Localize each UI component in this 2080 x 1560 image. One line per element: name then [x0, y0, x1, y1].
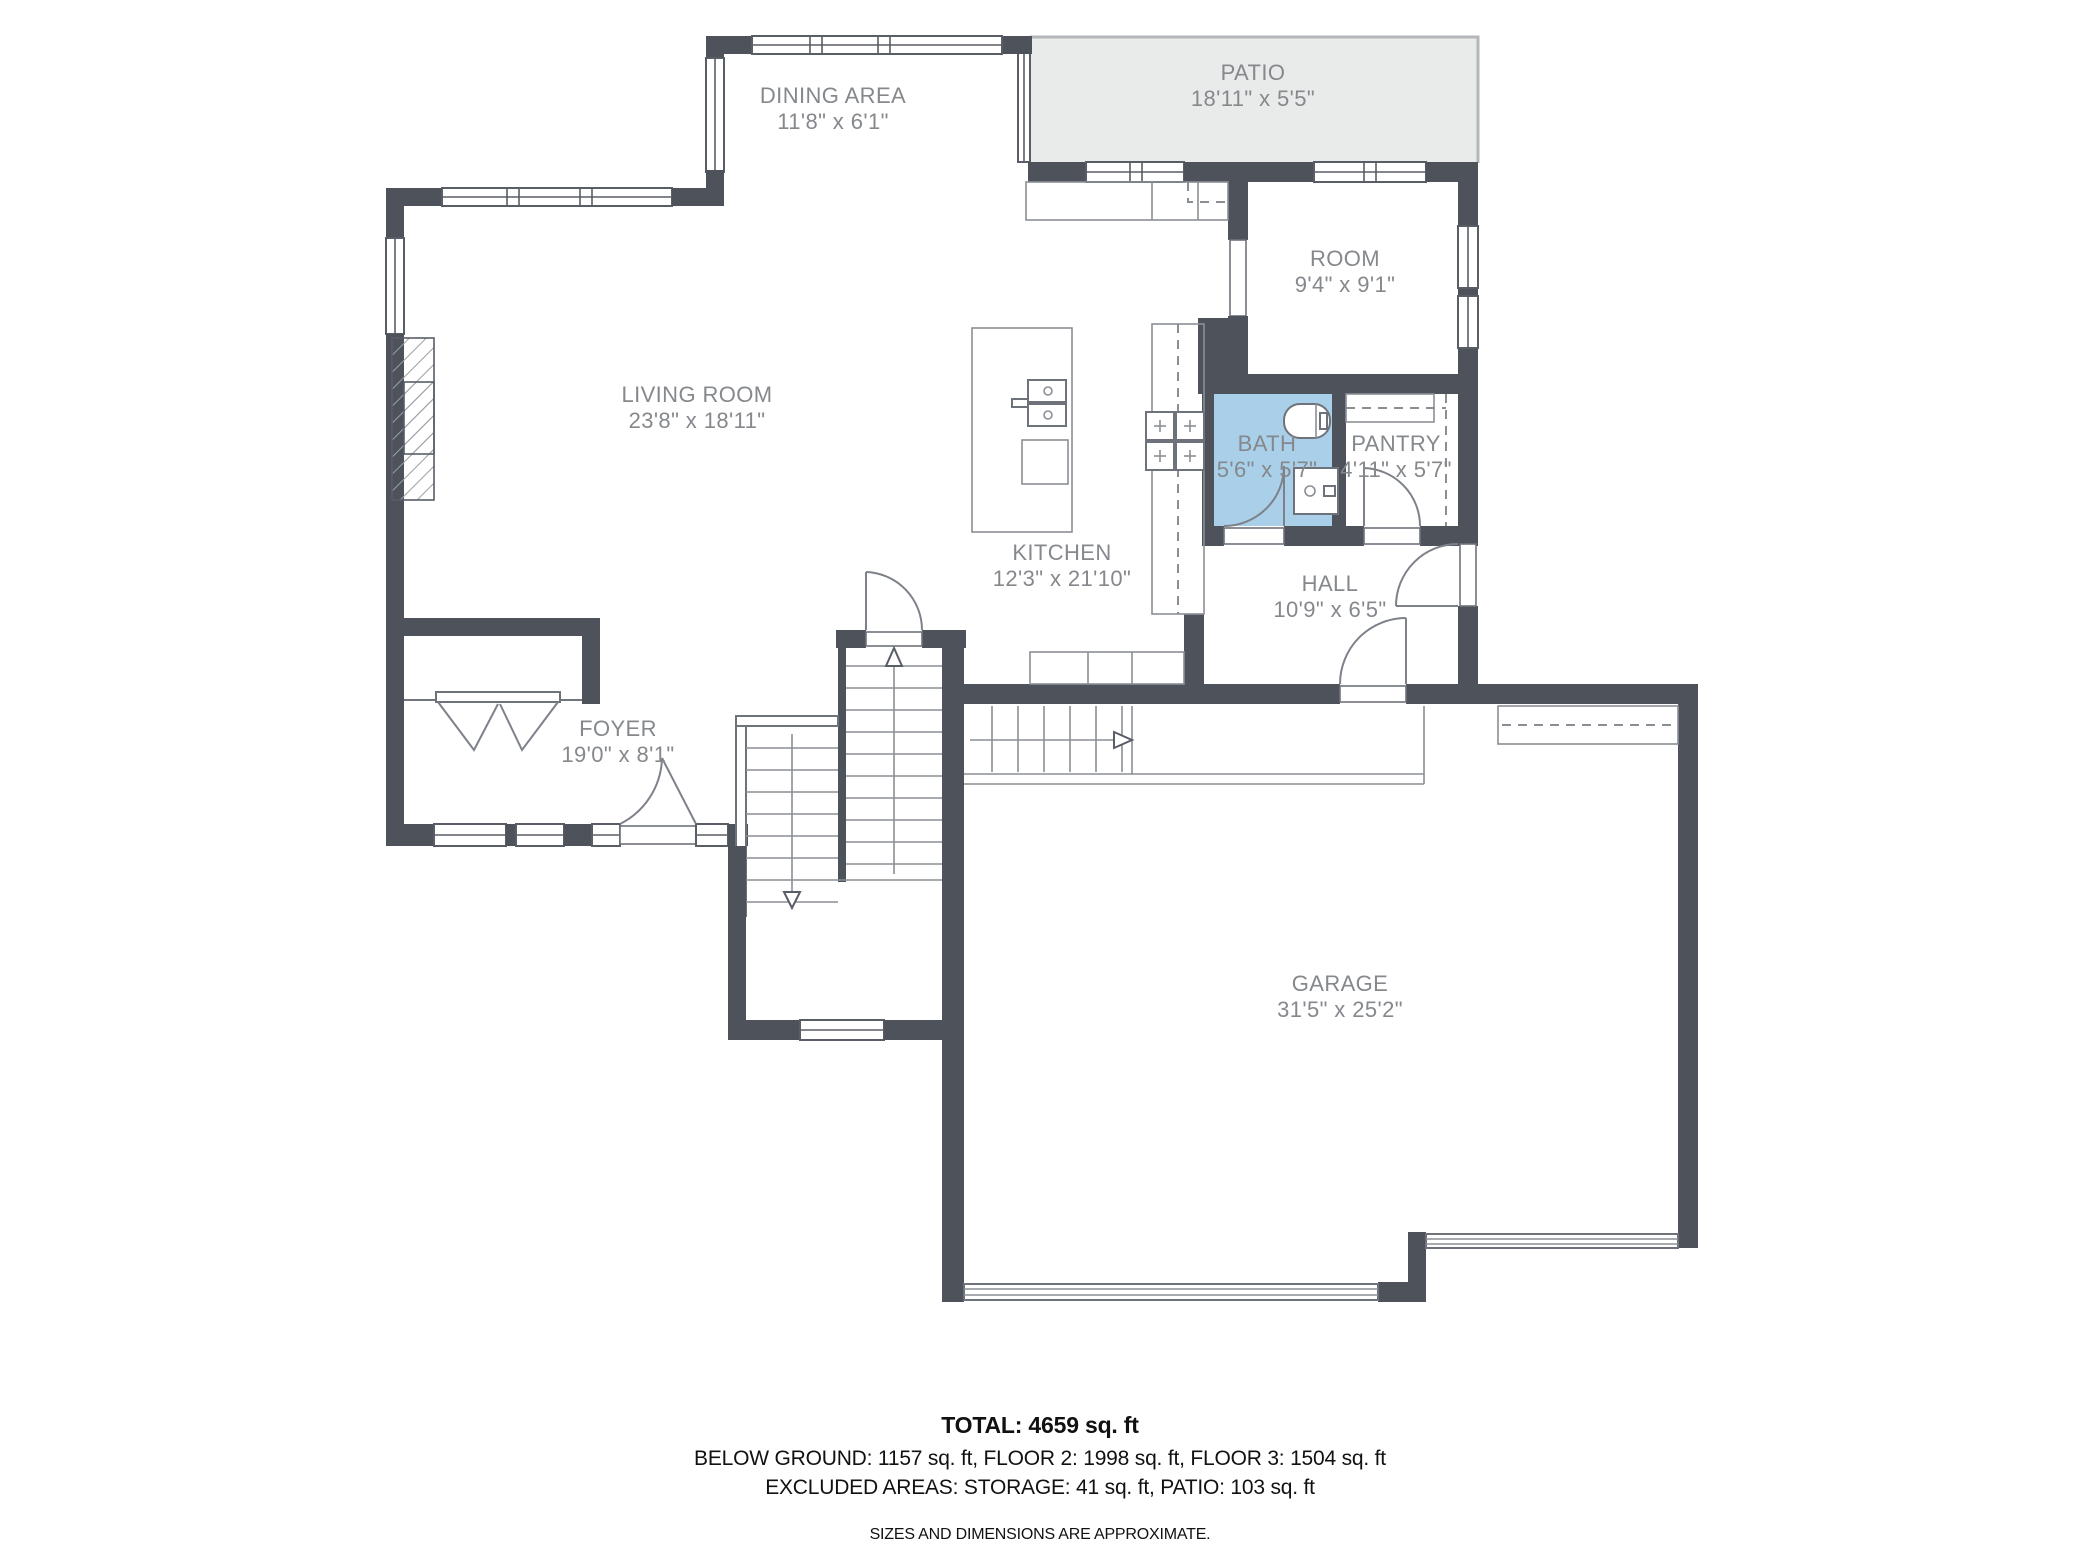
room-dims: 18'11" x 5'5" [1191, 86, 1315, 112]
kitchen-bottom-counter [1030, 652, 1184, 684]
kitchen-island [972, 328, 1072, 532]
hall-garage-door [1340, 618, 1406, 702]
room-name: KITCHEN [993, 540, 1132, 566]
room-name: HALL [1273, 571, 1386, 597]
room-label-patio: PATIO 18'11" x 5'5" [1191, 60, 1315, 112]
room-dims: 10'9" x 6'5" [1273, 597, 1386, 623]
garage-door-side [1426, 1234, 1678, 1248]
disclaimer-note: SIZES AND DIMENSIONS ARE APPROXIMATE. [0, 1526, 2080, 1544]
room-name: PATIO [1191, 60, 1315, 86]
room-name: DINING AREA [760, 83, 906, 109]
area-summary: TOTAL: 4659 sq. ft BELOW GROUND: 1157 sq… [0, 1412, 2080, 1544]
room-label-garage: GARAGE 31'5" x 25'2" [1277, 971, 1403, 1023]
room-dims: 31'5" x 25'2" [1277, 997, 1403, 1023]
total-area: TOTAL: 4659 sq. ft [0, 1412, 2080, 1439]
room-label-kitchen: KITCHEN 12'3" x 21'10" [993, 540, 1132, 592]
patio-bottom-wall [1028, 162, 1478, 182]
floor-areas: BELOW GROUND: 1157 sq. ft, FLOOR 2: 1998… [0, 1444, 2080, 1473]
room-dims: 19'0" x 8'1" [561, 742, 674, 768]
room-name: PANTRY [1340, 431, 1452, 457]
kitchen-top-counter [1026, 182, 1228, 220]
room-dims: 5'6" x 5'7" [1217, 457, 1318, 483]
room-name: FOYER [561, 716, 674, 742]
hall-side-door [1396, 544, 1476, 606]
garage-entry-steps [964, 706, 1424, 784]
room-label-living: LIVING ROOM 23'8" x 18'11" [621, 382, 772, 434]
room-name: BATH [1217, 431, 1318, 457]
room-label-room: ROOM 9'4" x 9'1" [1295, 246, 1396, 298]
room-dims: 12'3" x 21'10" [993, 566, 1132, 592]
room-name: ROOM [1295, 246, 1396, 272]
room-name: LIVING ROOM [621, 382, 772, 408]
room-dims: 11'8" x 6'1" [760, 109, 906, 135]
floor-plan-drawing [0, 0, 2080, 1560]
room-label-pantry: PANTRY 4'11" x 5'7" [1340, 431, 1452, 483]
garage-door-main [964, 1284, 1378, 1300]
garage-storage-shelf [1498, 706, 1678, 744]
left-exterior-wall [386, 188, 404, 826]
room-label-dining: DINING AREA 11'8" x 6'1" [760, 83, 906, 135]
room-dims: 23'8" x 18'11" [621, 408, 772, 434]
room-dims: 9'4" x 9'1" [1295, 272, 1396, 298]
room-label-bath: BATH 5'6" x 5'7" [1217, 431, 1318, 483]
room-name: GARAGE [1277, 971, 1403, 997]
stairwell-bumpout [728, 846, 944, 1040]
excluded-areas: EXCLUDED AREAS: STORAGE: 41 sq. ft, PATI… [0, 1473, 2080, 1502]
garage-walls [942, 630, 1698, 1302]
exterior-walls-top [386, 36, 1032, 206]
room-dims: 4'11" x 5'7" [1340, 457, 1452, 483]
cooktop [1146, 412, 1204, 470]
foyer-front-wall [386, 824, 748, 846]
floor-plan-page: DINING AREA 11'8" x 6'1" PATIO 18'11" x … [0, 0, 2080, 1560]
fireplace [392, 338, 434, 500]
room-label-hall: HALL 10'9" x 6'5" [1273, 571, 1386, 623]
room-label-foyer: FOYER 19'0" x 8'1" [561, 716, 674, 768]
